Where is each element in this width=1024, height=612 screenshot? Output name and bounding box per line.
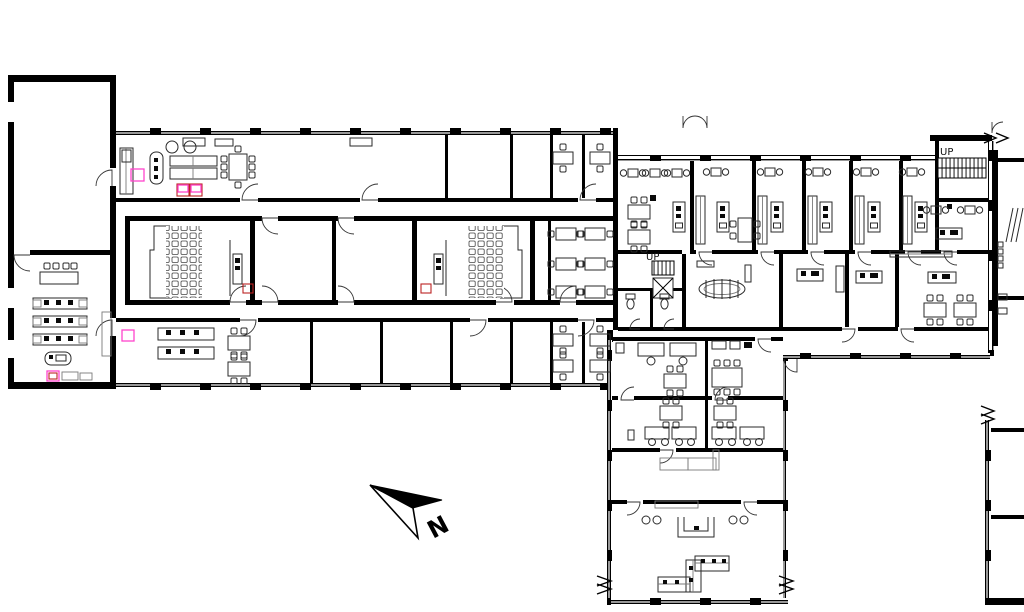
seating-rows (166, 226, 202, 298)
sofa-sectional (658, 556, 729, 592)
lab-rooms-north (696, 168, 927, 244)
seating-rows (468, 226, 504, 298)
stairwell-northeast: UP (938, 147, 986, 178)
elevator (653, 278, 673, 298)
highlighted-equipment (122, 330, 134, 341)
podium (233, 254, 242, 284)
lobby (642, 501, 748, 592)
room-northeast (923, 204, 982, 239)
lecture-hall-east (421, 226, 522, 298)
offices-south (553, 326, 610, 380)
interior-walls (30, 135, 988, 504)
lecture-hall-west (150, 226, 253, 298)
dining-table-8 (221, 146, 255, 188)
lab-bench (33, 316, 87, 327)
vending-machines (177, 184, 202, 196)
bottom-wing-offices (616, 341, 764, 446)
floor-plan-canvas: UP UP (0, 0, 1024, 612)
lab-lounge-room (620, 169, 689, 252)
av-equipment (421, 284, 431, 293)
break-room (120, 138, 372, 196)
tower-lab-room (33, 263, 111, 381)
reception-desk (678, 517, 714, 537)
door-swings (14, 116, 1003, 515)
conference-room (697, 261, 751, 299)
north-arrow: N (370, 485, 454, 544)
lab-bench (33, 298, 87, 309)
lab-bench (33, 334, 87, 345)
north-label: N (423, 510, 454, 544)
offices-north (553, 144, 610, 172)
podium (434, 254, 443, 284)
lab-southwest (122, 328, 250, 384)
floor-plan: UP UP (0, 0, 1024, 612)
up-label-northeast: UP (940, 147, 953, 158)
office-east-of-halls (548, 228, 613, 298)
